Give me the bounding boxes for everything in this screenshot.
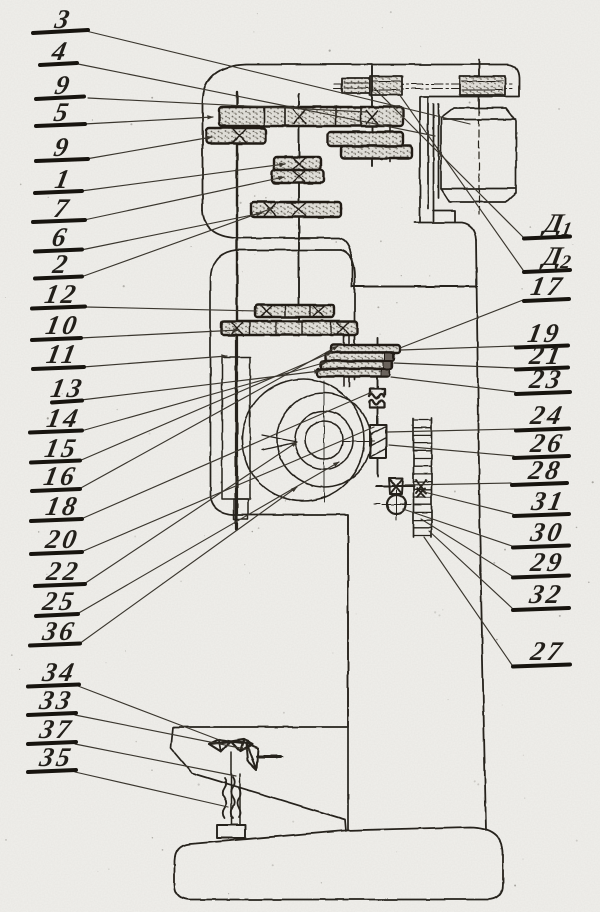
- svg-text:12: 12: [42, 279, 81, 309]
- svg-text:37: 37: [36, 714, 76, 744]
- svg-text:10: 10: [43, 310, 82, 340]
- svg-text:24: 24: [527, 400, 567, 430]
- svg-text:29: 29: [527, 547, 567, 577]
- svg-text:20: 20: [42, 524, 82, 554]
- svg-text:23: 23: [526, 364, 566, 394]
- svg-text:34: 34: [39, 657, 79, 687]
- svg-text:16: 16: [41, 461, 80, 491]
- svg-text:31: 31: [528, 486, 568, 516]
- svg-text:27: 27: [527, 636, 567, 666]
- svg-text:11: 11: [44, 339, 81, 369]
- svg-text:17: 17: [528, 271, 567, 301]
- svg-text:36: 36: [39, 616, 79, 646]
- svg-text:13: 13: [48, 373, 87, 403]
- svg-text:28: 28: [525, 455, 565, 485]
- svg-text:22: 22: [43, 556, 83, 586]
- svg-text:26: 26: [527, 428, 567, 458]
- svg-text:32: 32: [526, 579, 566, 609]
- svg-text:25: 25: [39, 586, 79, 616]
- svg-text:15: 15: [42, 433, 81, 463]
- svg-text:35: 35: [36, 742, 76, 772]
- svg-text:30: 30: [527, 517, 567, 547]
- svg-text:18: 18: [43, 491, 82, 521]
- svg-text:14: 14: [44, 403, 83, 433]
- svg-text:33: 33: [36, 685, 76, 715]
